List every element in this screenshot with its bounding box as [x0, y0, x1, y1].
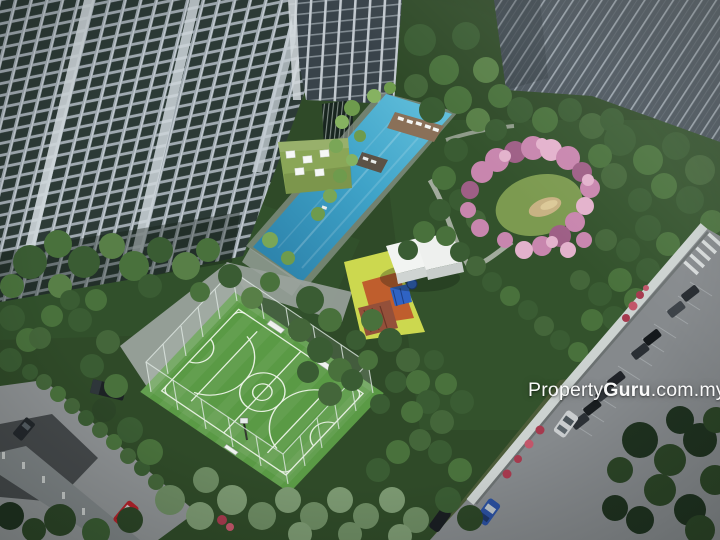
scene-canvas — [0, 0, 720, 540]
vignette-overlay — [0, 0, 720, 540]
watermark-guru: Guru — [603, 379, 650, 401]
watermark-suffix: .com.my — [651, 379, 720, 401]
watermark-property: Property — [528, 379, 603, 401]
aerial-render: PropertyGuru.com.my — [0, 0, 720, 540]
watermark: PropertyGuru.com.my — [528, 379, 720, 401]
